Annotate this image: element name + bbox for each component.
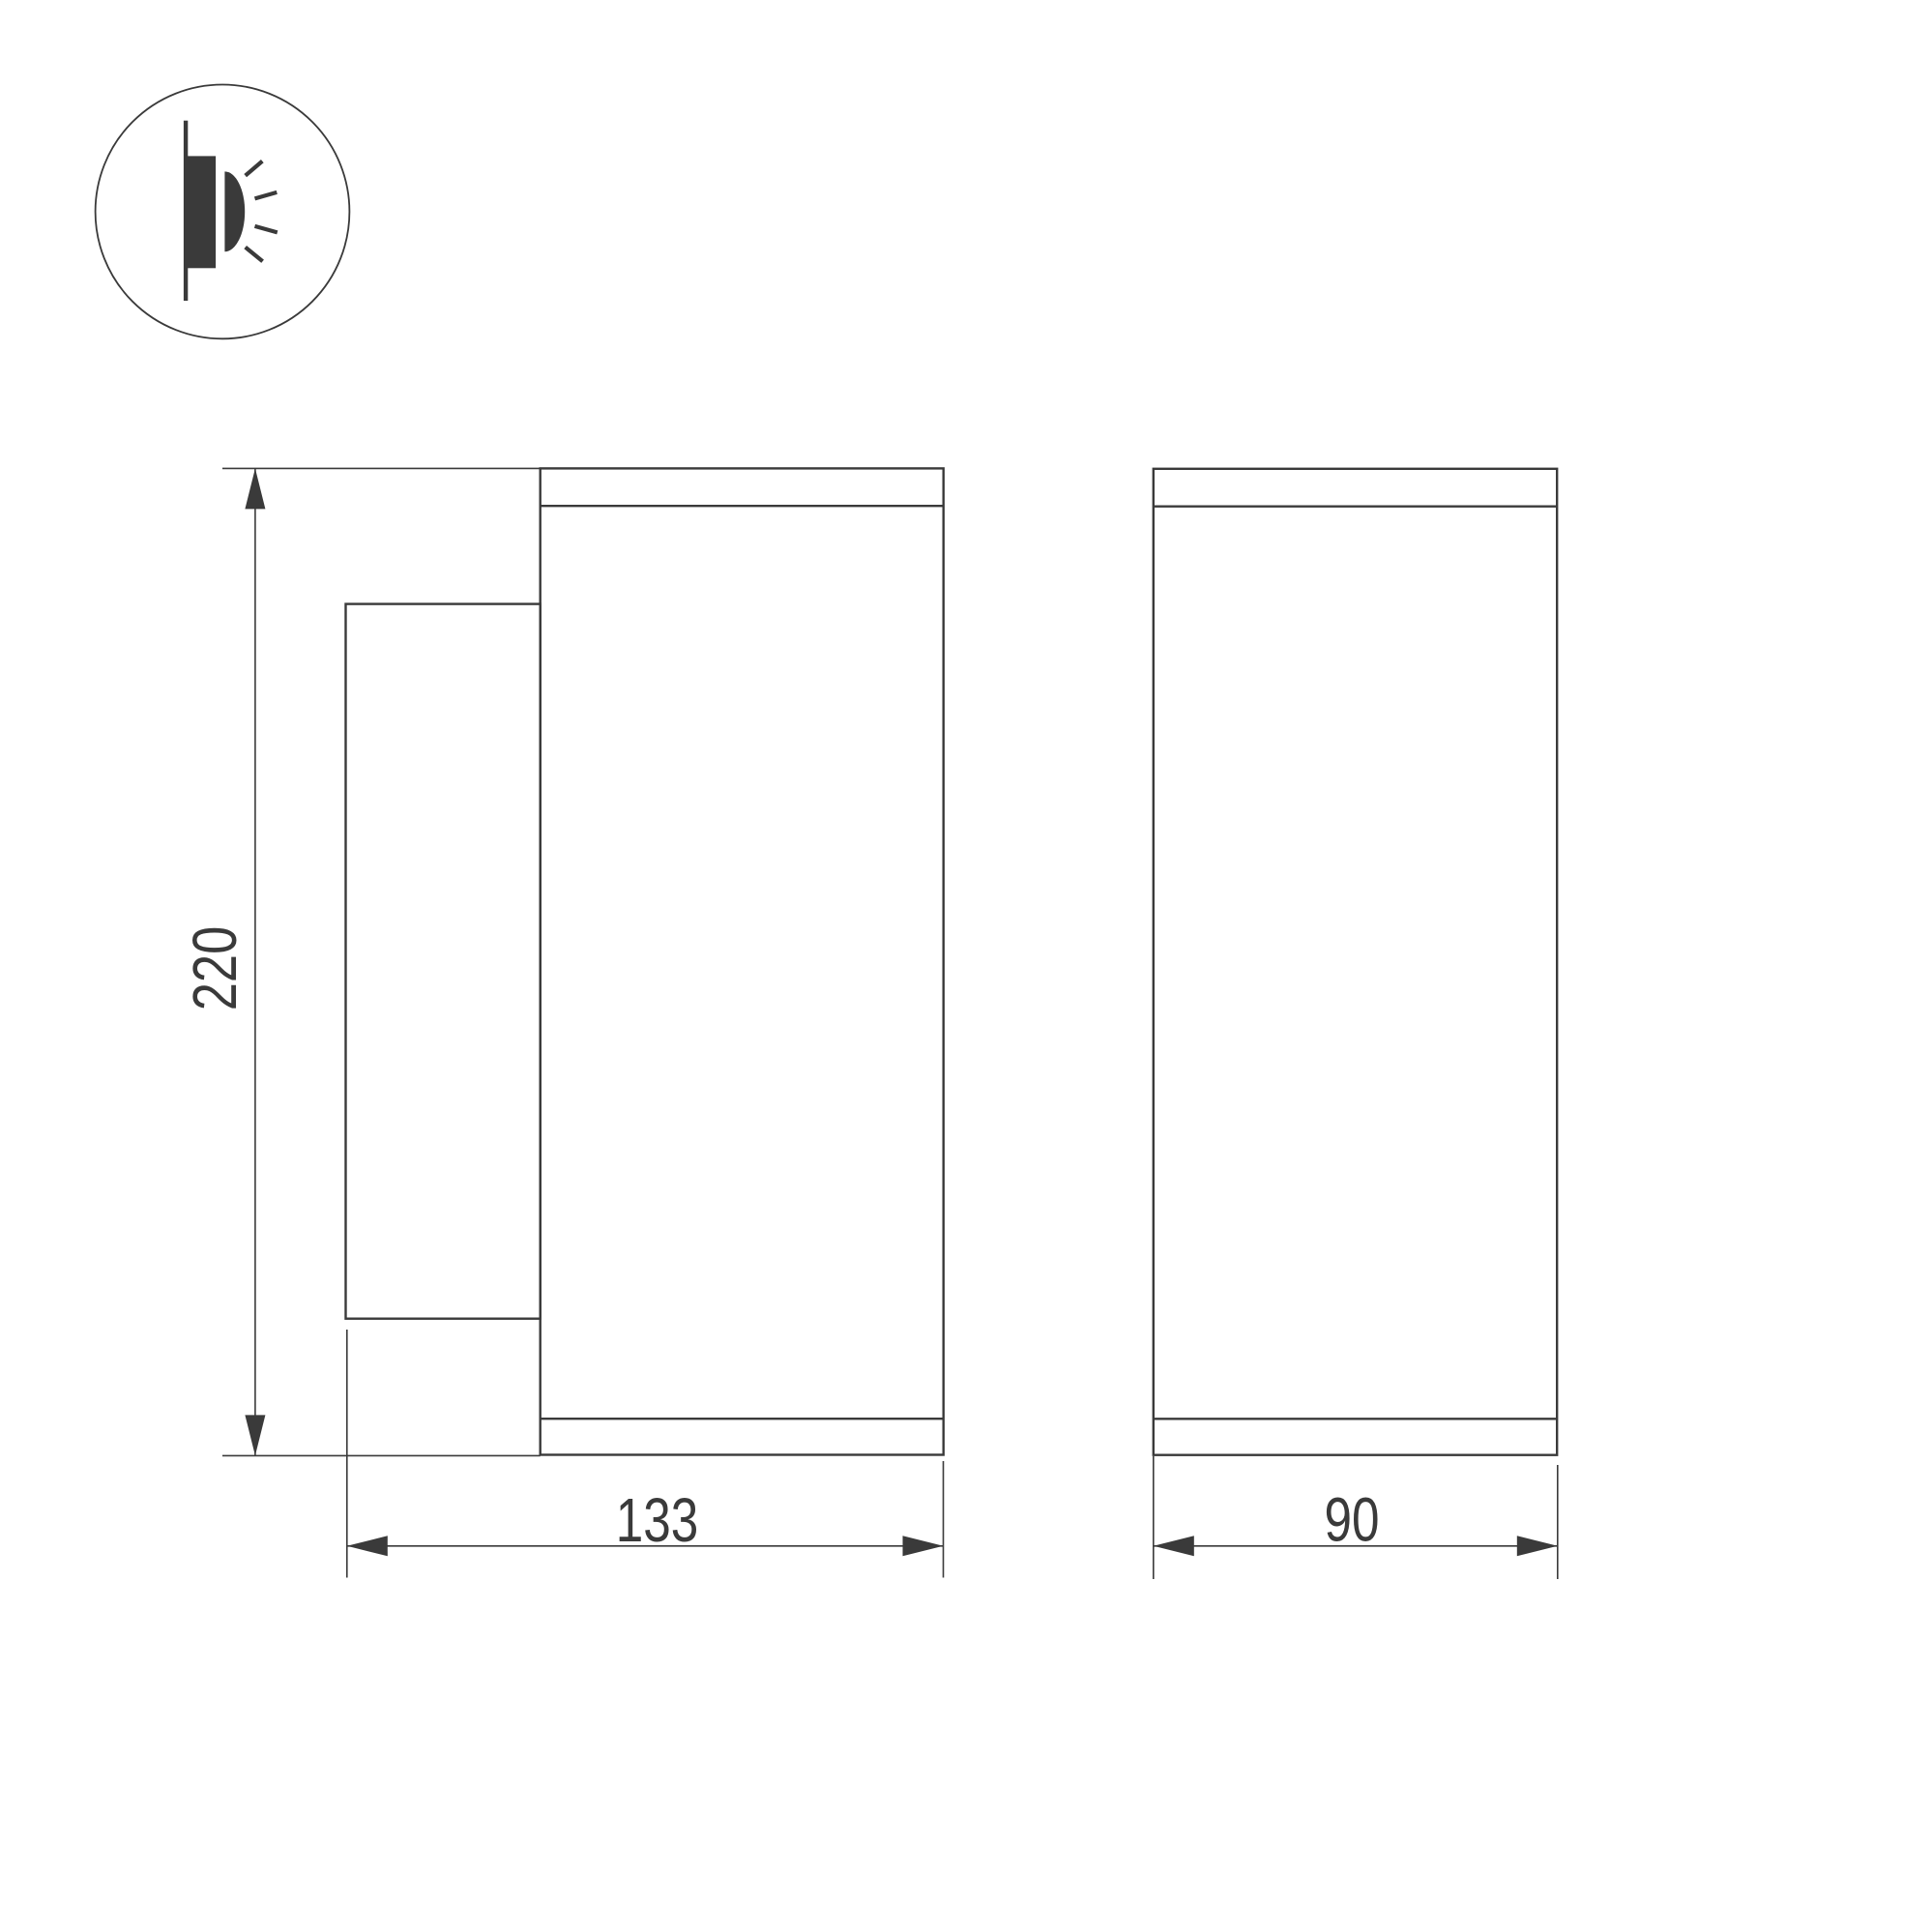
svg-text:220: 220 [180, 926, 249, 1011]
svg-text:90: 90 [1325, 1484, 1380, 1554]
svg-text:133: 133 [616, 1485, 699, 1555]
